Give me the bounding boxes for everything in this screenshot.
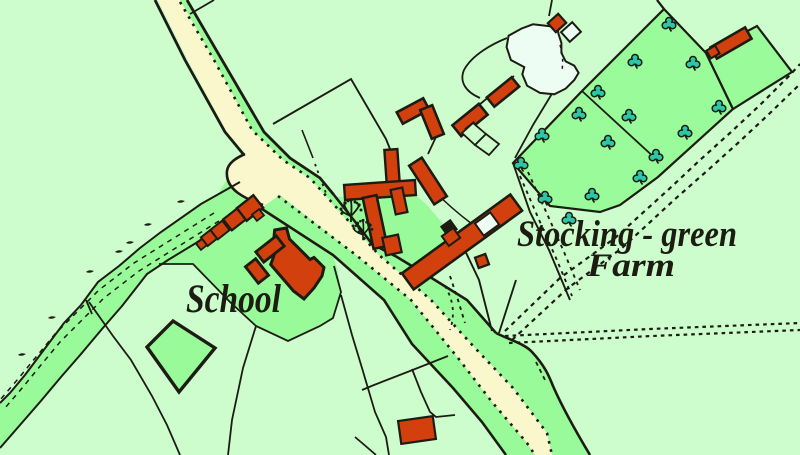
svg-text:School: School (186, 276, 282, 321)
svg-text:Farm: Farm (586, 248, 675, 284)
